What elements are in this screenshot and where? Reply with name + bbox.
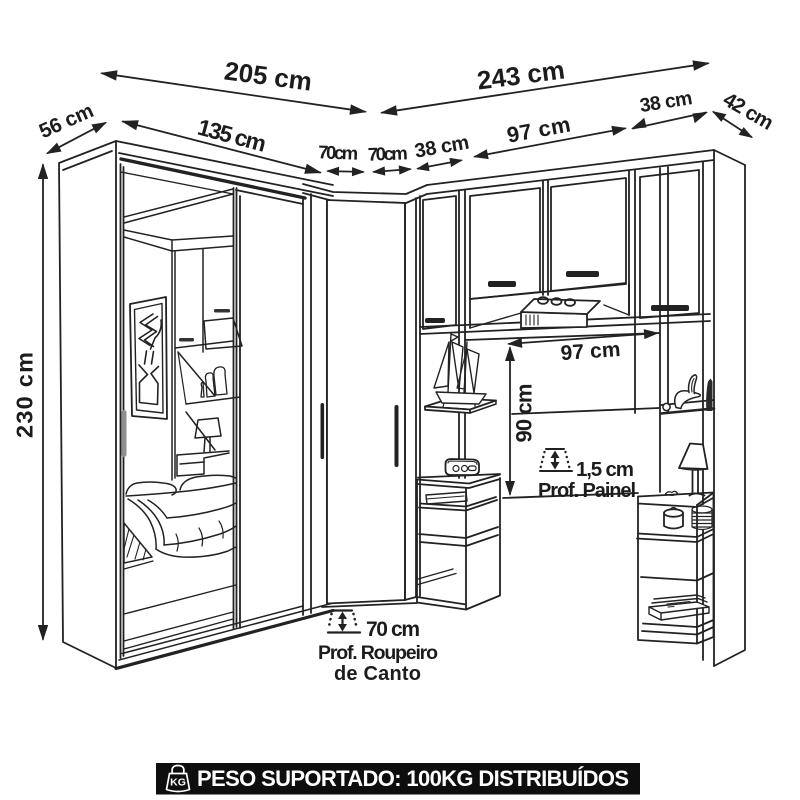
svg-text:97 cm: 97 cm xyxy=(560,338,621,365)
svg-text:PESO SUPORTADO: 100KG DISTRIBU: PESO SUPORTADO: 100KG DISTRIBUÍDOS xyxy=(197,766,629,791)
svg-text:38 cm: 38 cm xyxy=(638,87,694,117)
svg-text:243 cm: 243 cm xyxy=(475,55,566,96)
svg-text:42 cm: 42 cm xyxy=(719,88,777,135)
svg-text:70 cm: 70 cm xyxy=(366,618,420,641)
svg-text:70cm: 70cm xyxy=(318,141,359,163)
svg-text:70cm: 70cm xyxy=(367,142,408,164)
svg-text:Prof. Roupeiro: Prof. Roupeiro xyxy=(318,642,438,664)
svg-text:230 cm: 230 cm xyxy=(12,352,38,438)
svg-text:56 cm: 56 cm xyxy=(36,99,97,143)
svg-text:205 cm: 205 cm xyxy=(223,55,314,96)
svg-text:de Canto: de Canto xyxy=(334,663,421,685)
svg-text:Prof. Painel: Prof. Painel xyxy=(538,480,636,502)
svg-text:97 cm: 97 cm xyxy=(505,112,572,148)
svg-text:1,5 cm: 1,5 cm xyxy=(576,458,634,481)
svg-text:KG: KG xyxy=(170,777,186,789)
svg-text:38 cm: 38 cm xyxy=(413,131,471,162)
